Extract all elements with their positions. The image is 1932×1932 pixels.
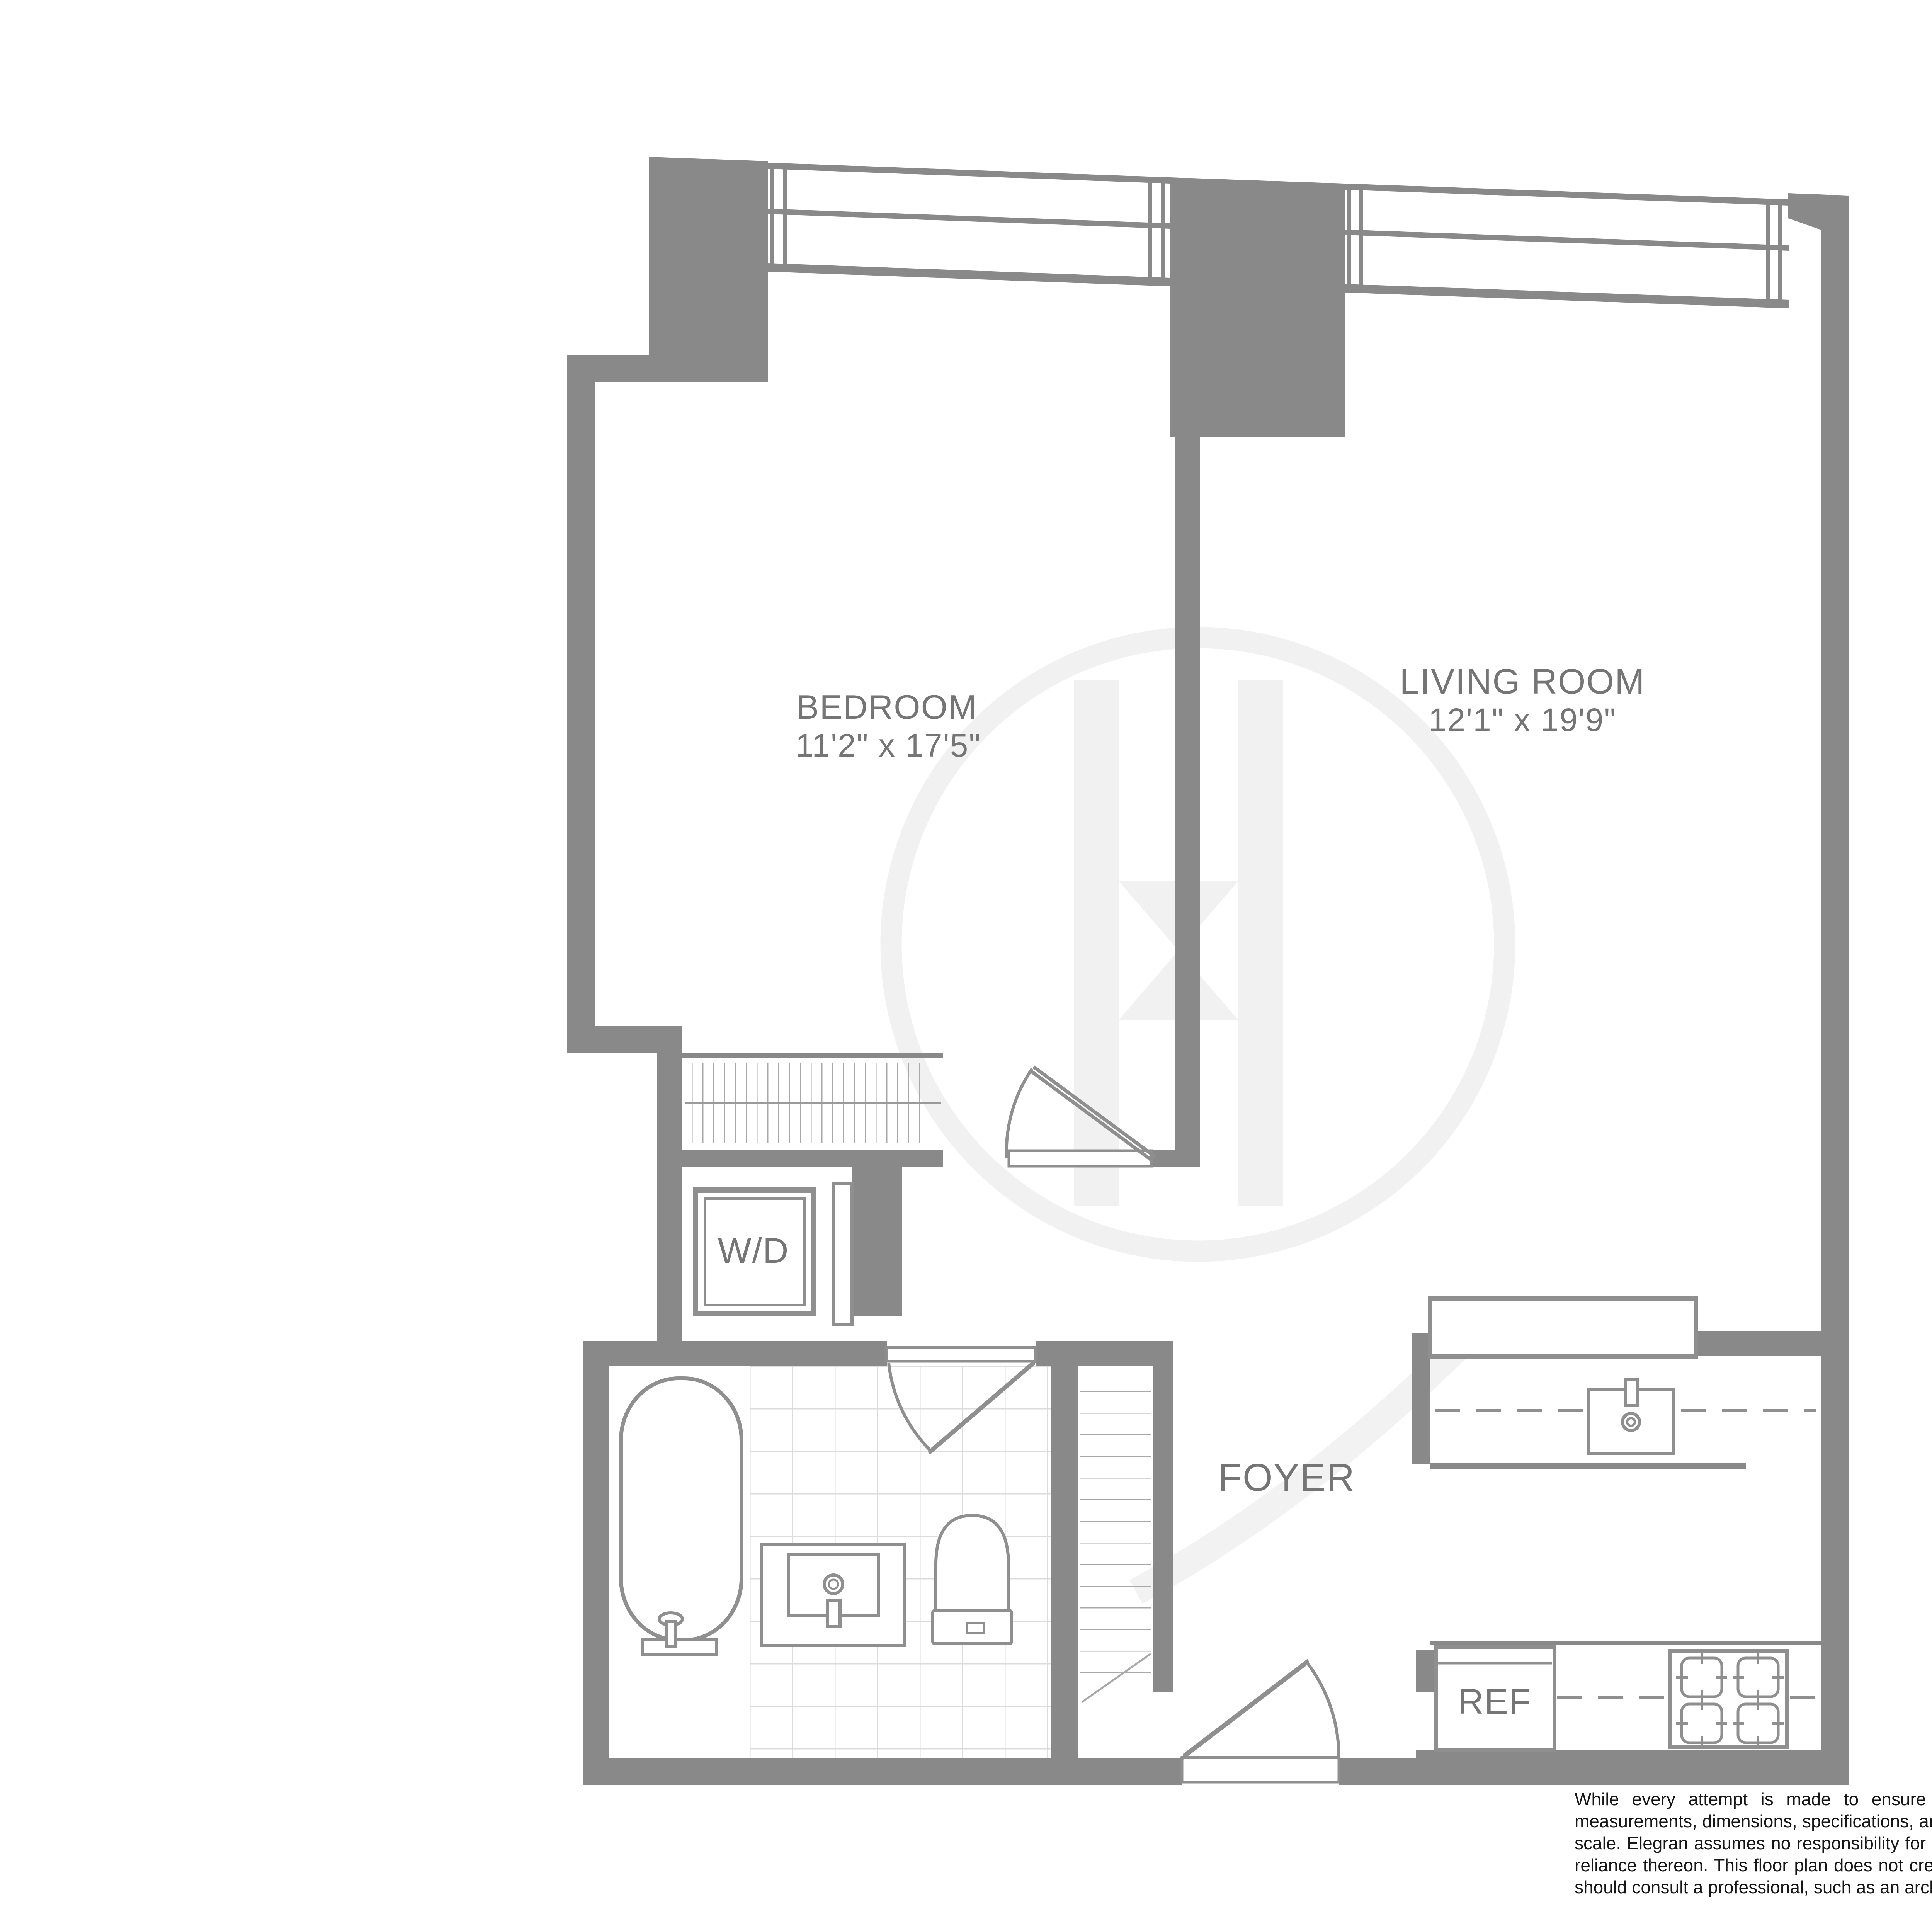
living-room-dimensions: 12'1" x 19'9" <box>1429 702 1617 738</box>
kitchen-faucet-icon <box>1626 1380 1638 1405</box>
wall-left-outer <box>567 382 595 1026</box>
bedroom-window <box>768 163 1170 286</box>
wall-bathroom-right <box>1051 1366 1078 1758</box>
living-room-window <box>1345 184 1789 308</box>
toilet <box>933 1515 1012 1644</box>
entry-door-leaf <box>1181 1660 1308 1759</box>
wall-bathroom-left <box>583 1366 609 1758</box>
wall-left-stub <box>567 355 768 382</box>
wall-bottom-left <box>583 1758 1182 1785</box>
disclaimer-text: While every attempt is made to ensure ac… <box>1575 1788 1932 1898</box>
entry-door <box>1181 1660 1339 1782</box>
counter-front-edge <box>1430 1463 1746 1469</box>
wall-top-left-block <box>649 157 768 382</box>
bedroom-dimensions: 11'2" x 17'5" <box>796 727 981 764</box>
foyer-label: FOYER <box>1218 1456 1355 1499</box>
stove <box>1670 1651 1787 1747</box>
bedroom-door-sill <box>1009 1151 1151 1166</box>
wall-kitchen-stub <box>1416 1650 1434 1692</box>
bathroom-door-sill <box>887 1347 1036 1361</box>
wall-center-pillar <box>1170 177 1345 437</box>
wall-foyer-closet <box>1153 1366 1173 1692</box>
wall-bedroom-bottom-stub <box>1151 1150 1200 1167</box>
wall-bathroom-top-right <box>1036 1341 1173 1366</box>
lower-counter-edge <box>1430 1641 1821 1645</box>
tub-faucet-icon <box>666 1621 675 1647</box>
bedroom-door-swing-arc <box>1007 1069 1032 1158</box>
entry-door-sill <box>1182 1757 1339 1782</box>
wall-right-outer <box>1821 216 1849 1785</box>
wall-kitchen-top <box>1696 1331 1821 1356</box>
sink-faucet-icon <box>828 1600 840 1627</box>
washer-dryer-label: W/D <box>718 1231 789 1270</box>
bedroom-closet <box>685 1063 941 1143</box>
wall-foyer-column <box>852 1167 902 1316</box>
wall-bathroom-top-left <box>583 1341 887 1366</box>
wall-bedroom-living-divider <box>1175 437 1200 1150</box>
wall-bottom-mid <box>1339 1758 1416 1785</box>
floor-plan-svg: BEDROOM 11'2" x 17'5" LIVING ROOM 12'1" … <box>0 0 1932 1932</box>
wall-left-jog <box>567 1026 682 1053</box>
bathtub <box>621 1378 742 1655</box>
bedroom-closet-front-line <box>682 1053 943 1058</box>
wall-kitchen-jamb <box>1412 1333 1430 1464</box>
living-room-label: LIVING ROOM <box>1400 662 1645 701</box>
entry-door-swing-arc <box>1307 1662 1339 1757</box>
shelf-closet <box>1080 1391 1151 1702</box>
wd-closet-door <box>834 1183 852 1325</box>
bedroom-label: BEDROOM <box>796 688 978 726</box>
kitchen-peninsula-counter <box>1430 1298 1696 1356</box>
floor-plan-page: BEDROOM 11'2" x 17'5" LIVING ROOM 12'1" … <box>0 0 1932 1932</box>
wall-bottom-kitchen <box>1416 1750 1849 1785</box>
wall-closet-left <box>657 1053 682 1341</box>
wall-bedroom-bottom <box>682 1150 943 1167</box>
vanity-sink <box>762 1544 905 1645</box>
refrigerator-label: REF <box>1458 1682 1531 1721</box>
